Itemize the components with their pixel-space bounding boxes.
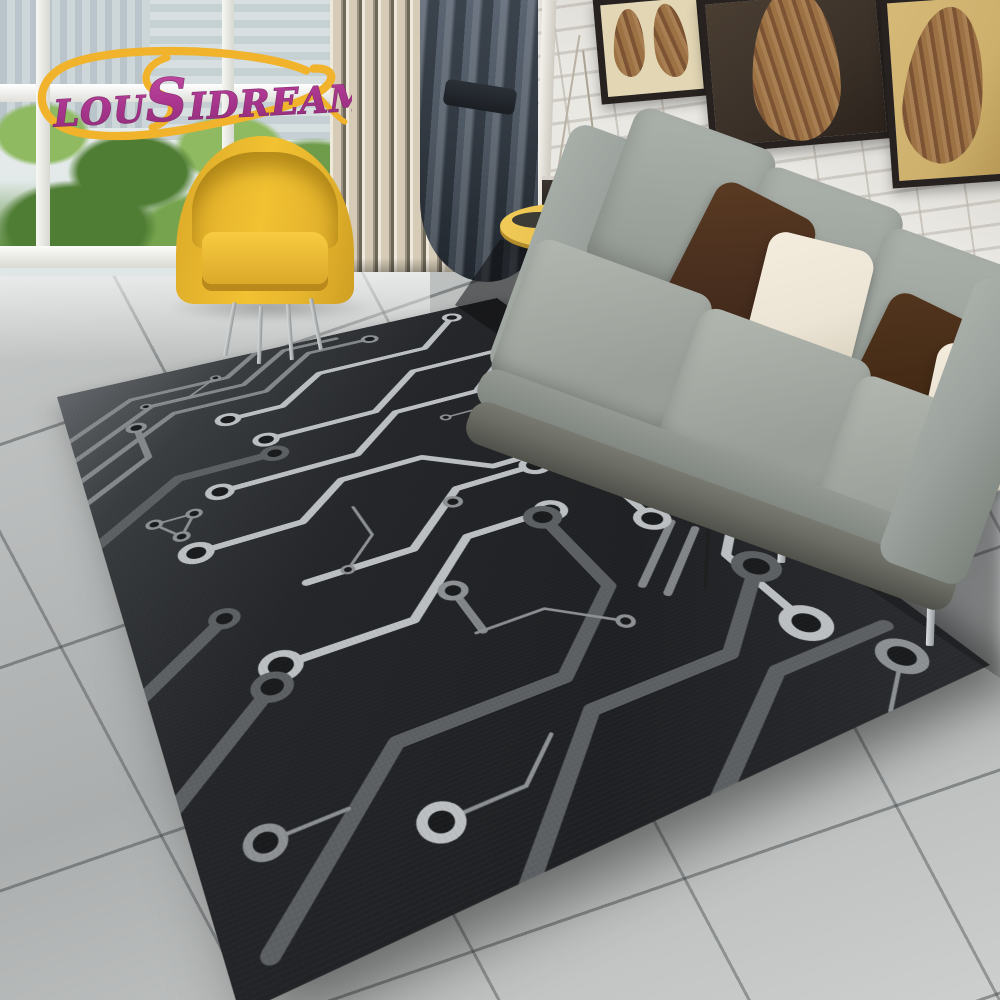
brand-part-idream: IDREAM	[187, 76, 352, 129]
yellow-armchair	[176, 136, 354, 332]
brand-part-s: S	[143, 64, 190, 135]
brand-watermark: LOUSIDREAM	[22, 42, 352, 154]
brand-part-lou: LOU	[51, 88, 148, 136]
living-room-scene: LOUSIDREAM	[0, 0, 1000, 1000]
armchair-seat-cushion	[202, 232, 328, 284]
